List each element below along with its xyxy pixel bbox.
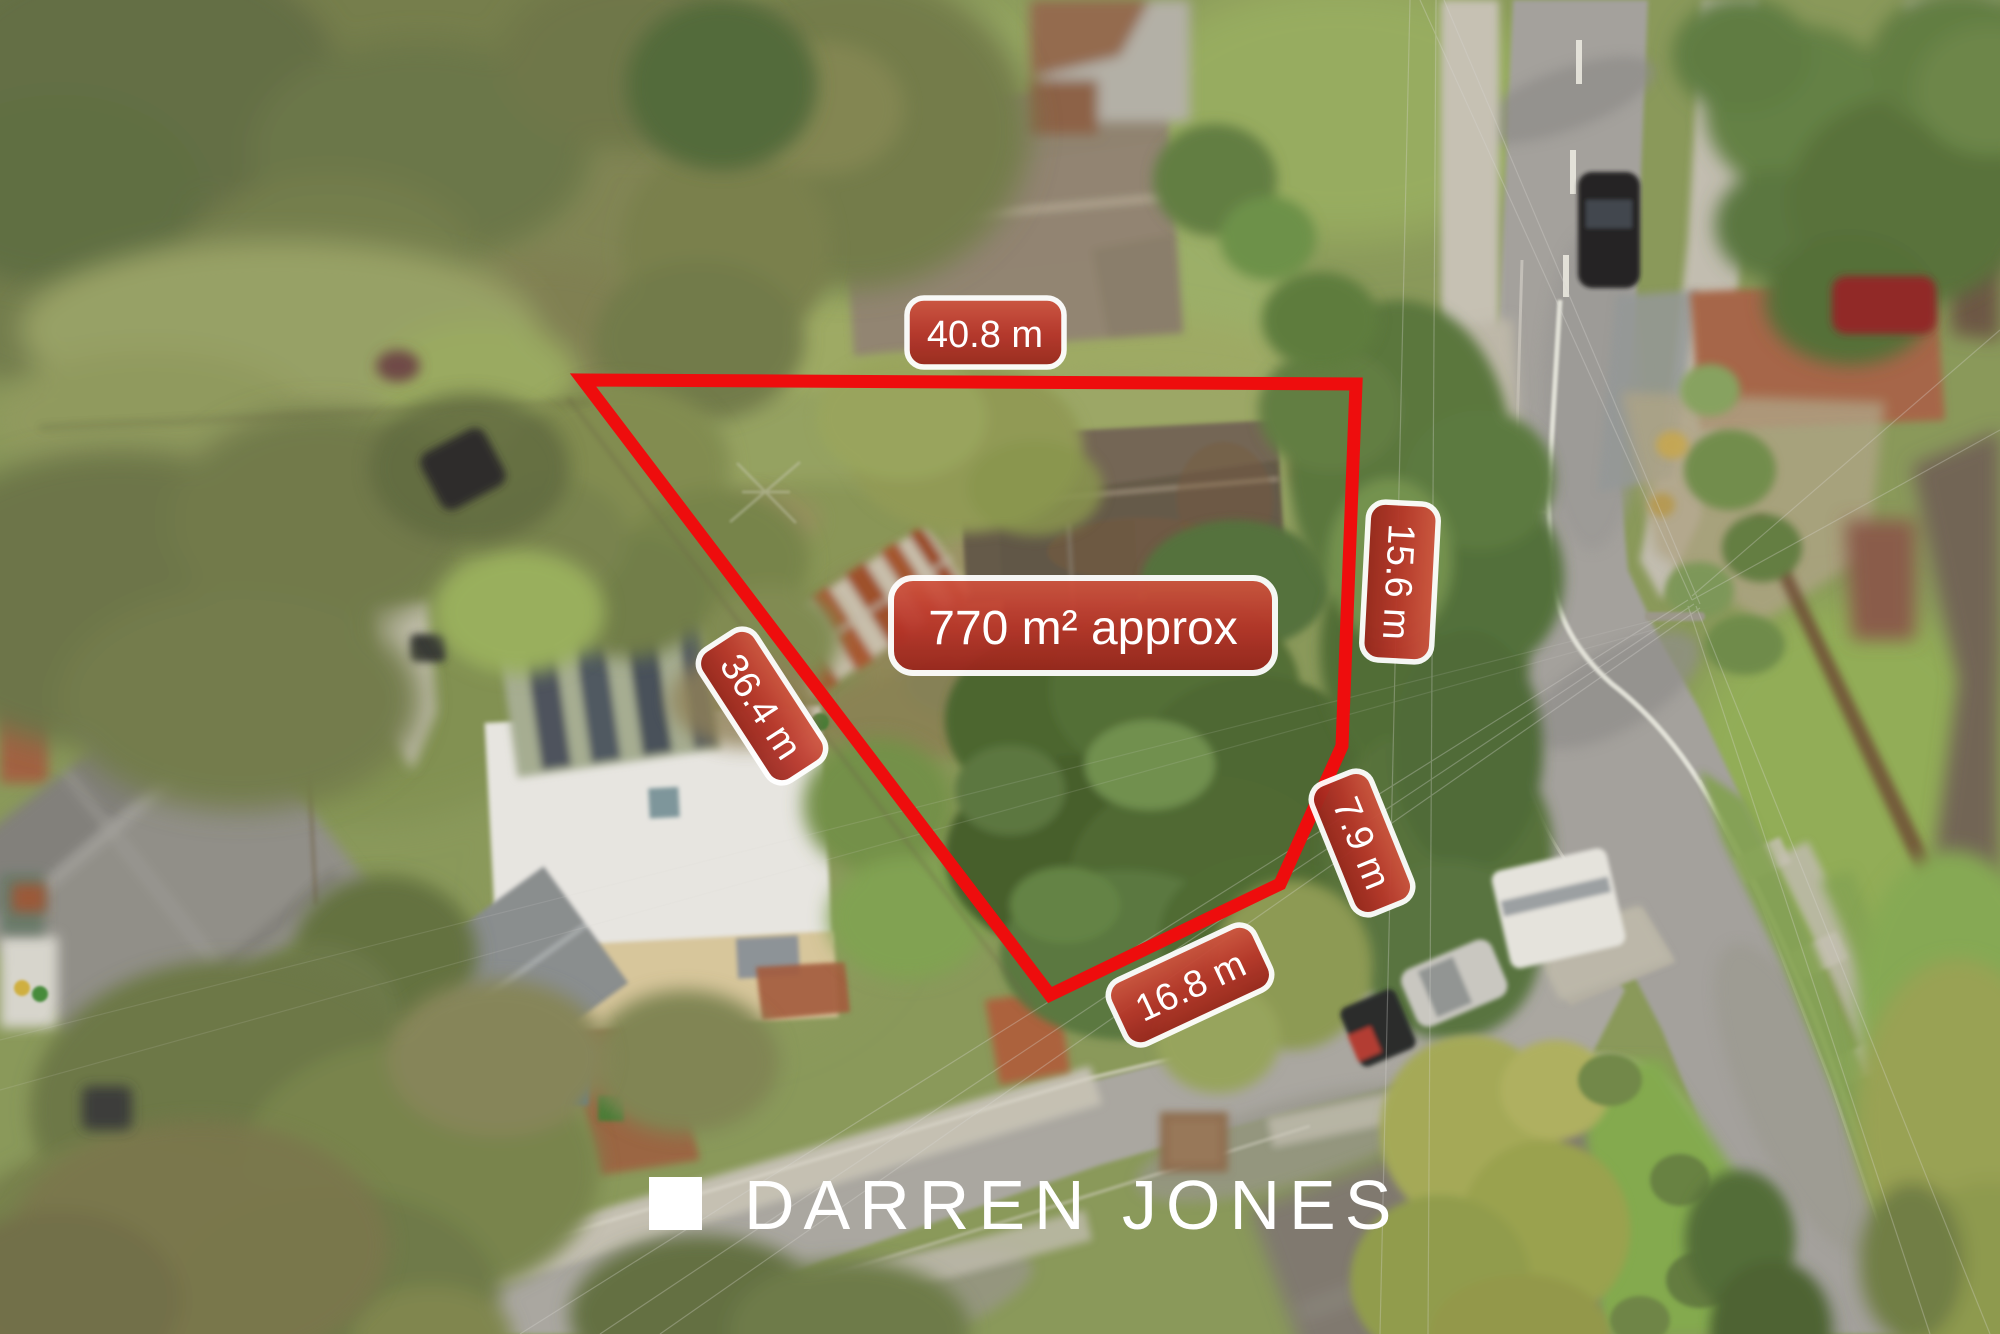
svg-text:770 m² approx: 770 m² approx (928, 602, 1238, 655)
svg-text:DARREN JONES: DARREN JONES (744, 1166, 1400, 1244)
svg-text:15.6 m: 15.6 m (1374, 523, 1422, 641)
svg-text:40.8 m: 40.8 m (927, 314, 1043, 356)
